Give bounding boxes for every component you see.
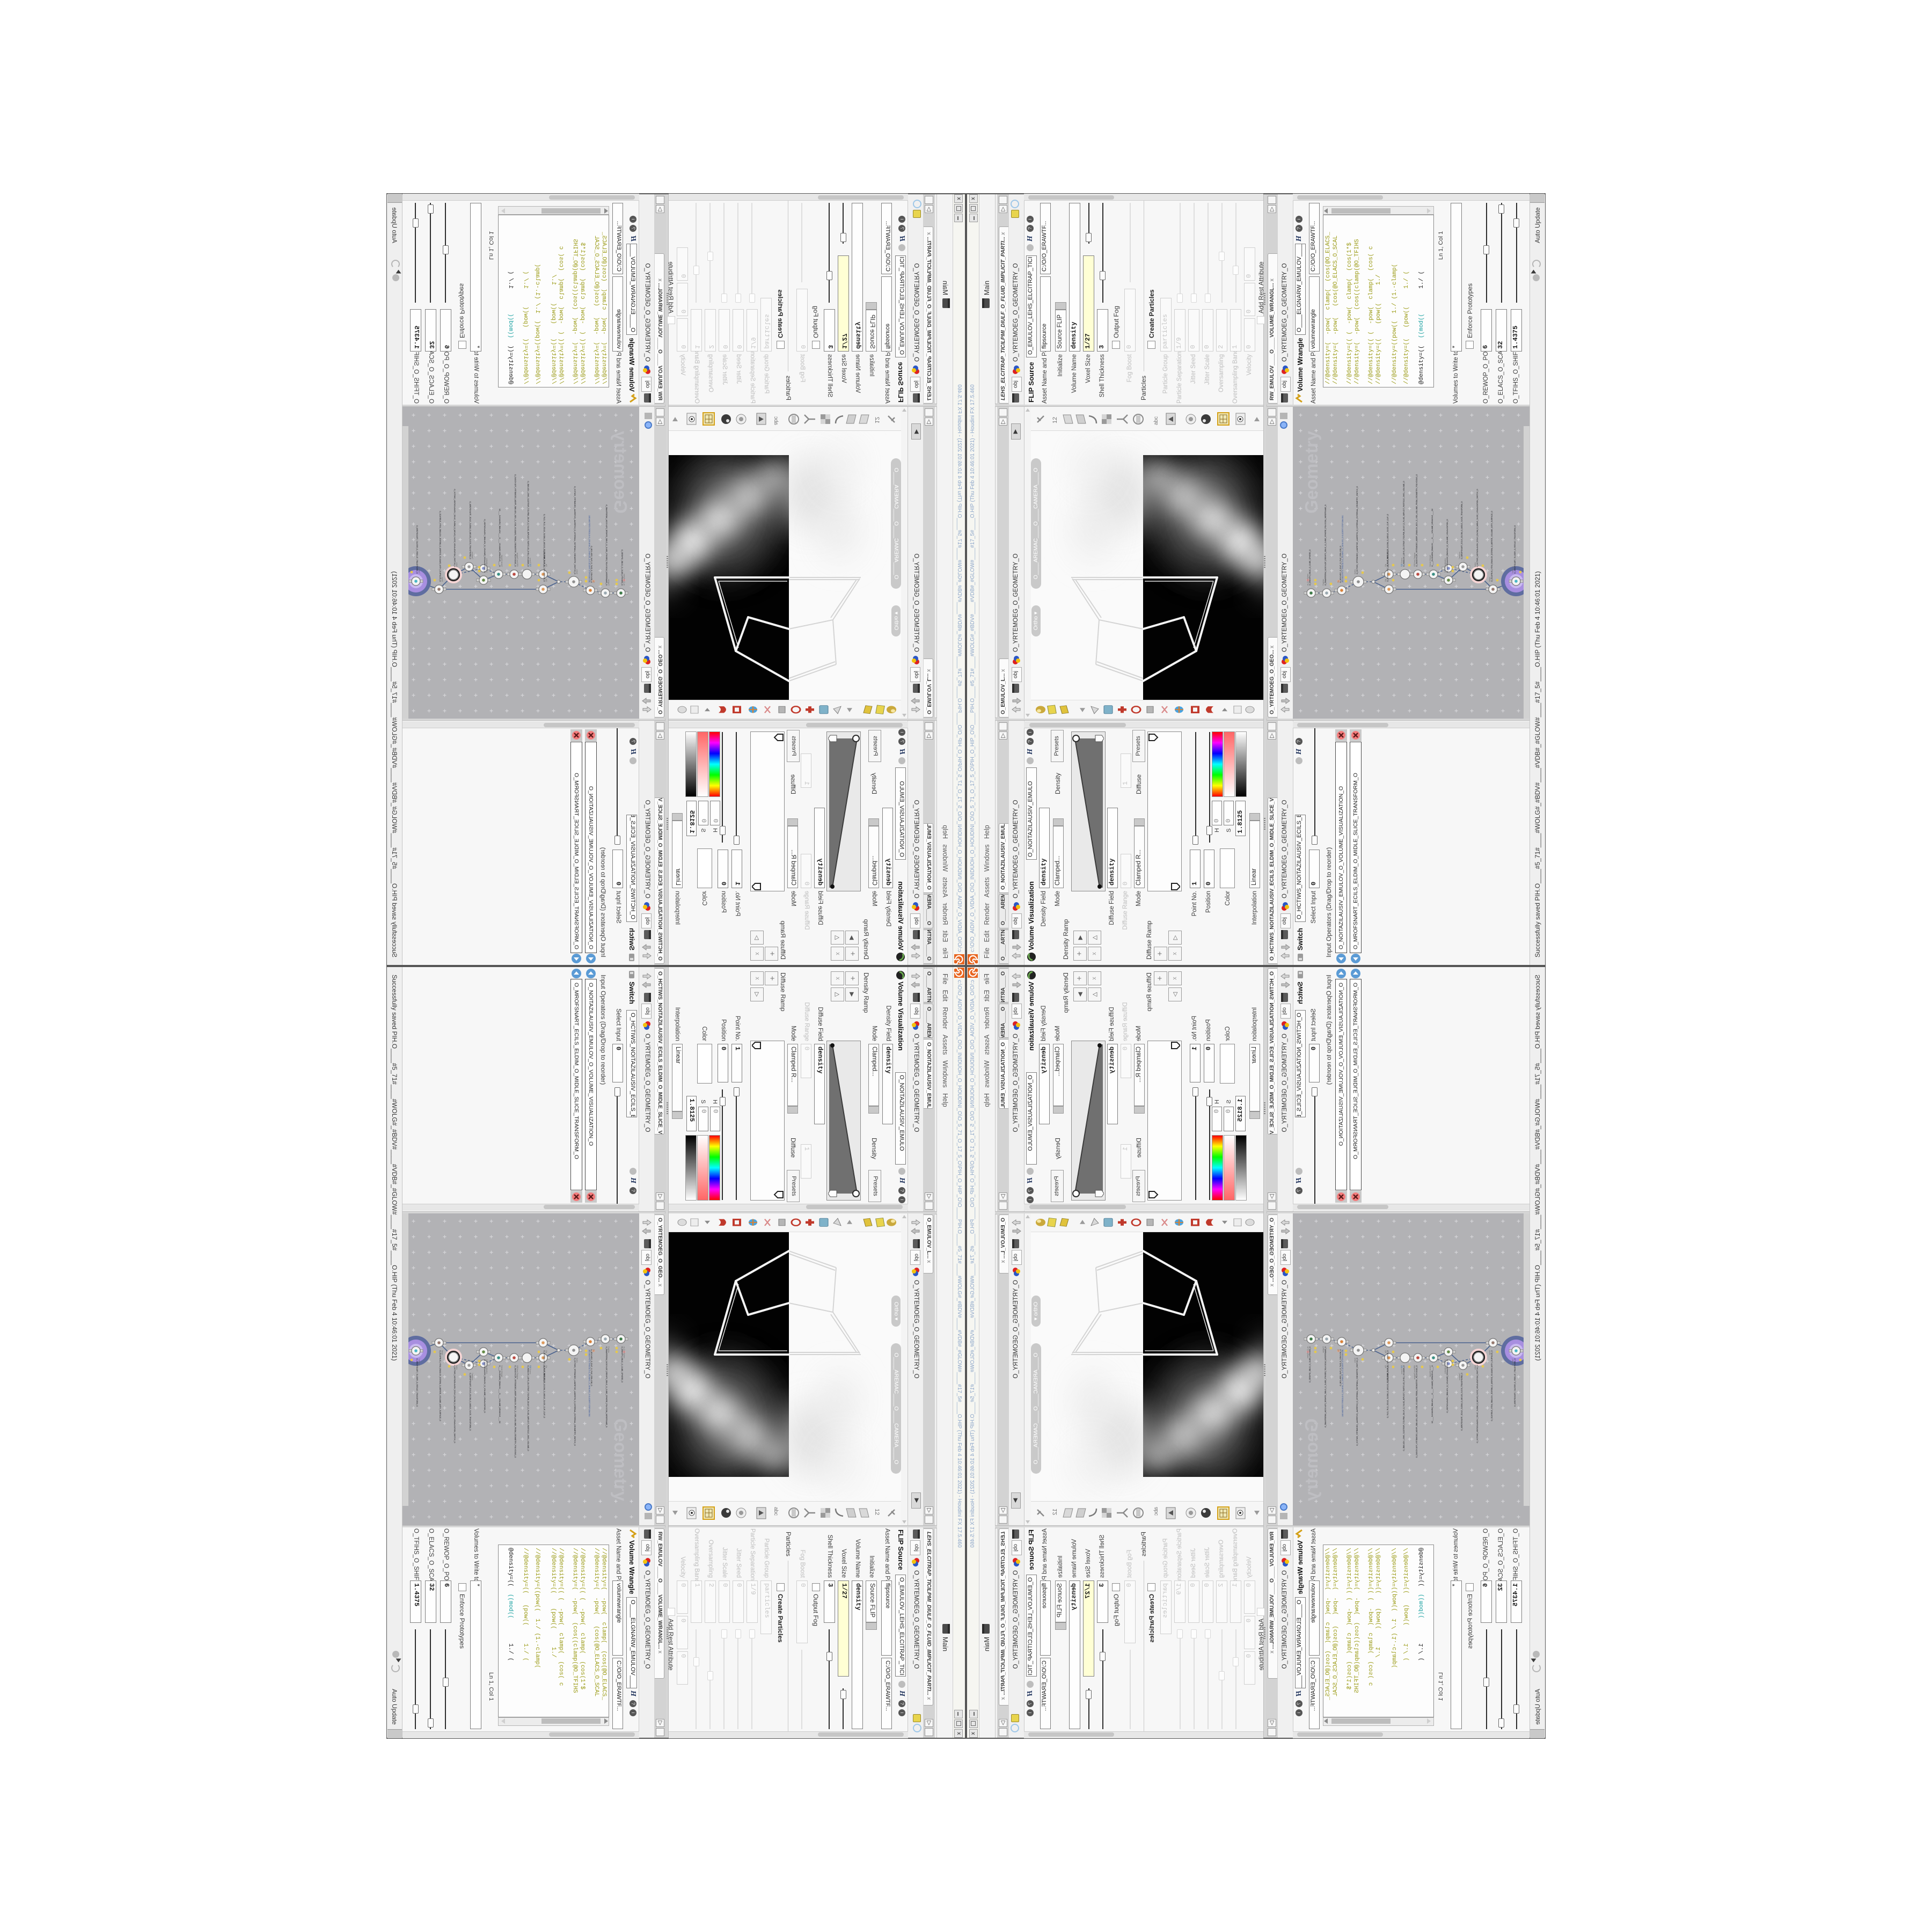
svg-text:12: 12 (1052, 1509, 1058, 1515)
svg-text:abc: abc (1153, 1507, 1159, 1516)
svg-text:abc: abc (1153, 416, 1159, 425)
svg-text:12: 12 (874, 417, 880, 423)
svg-text:12: 12 (874, 1509, 880, 1515)
svg-text:abc: abc (773, 416, 779, 425)
svg-text:abc: abc (773, 1507, 779, 1516)
svg-text:12: 12 (1052, 417, 1058, 423)
